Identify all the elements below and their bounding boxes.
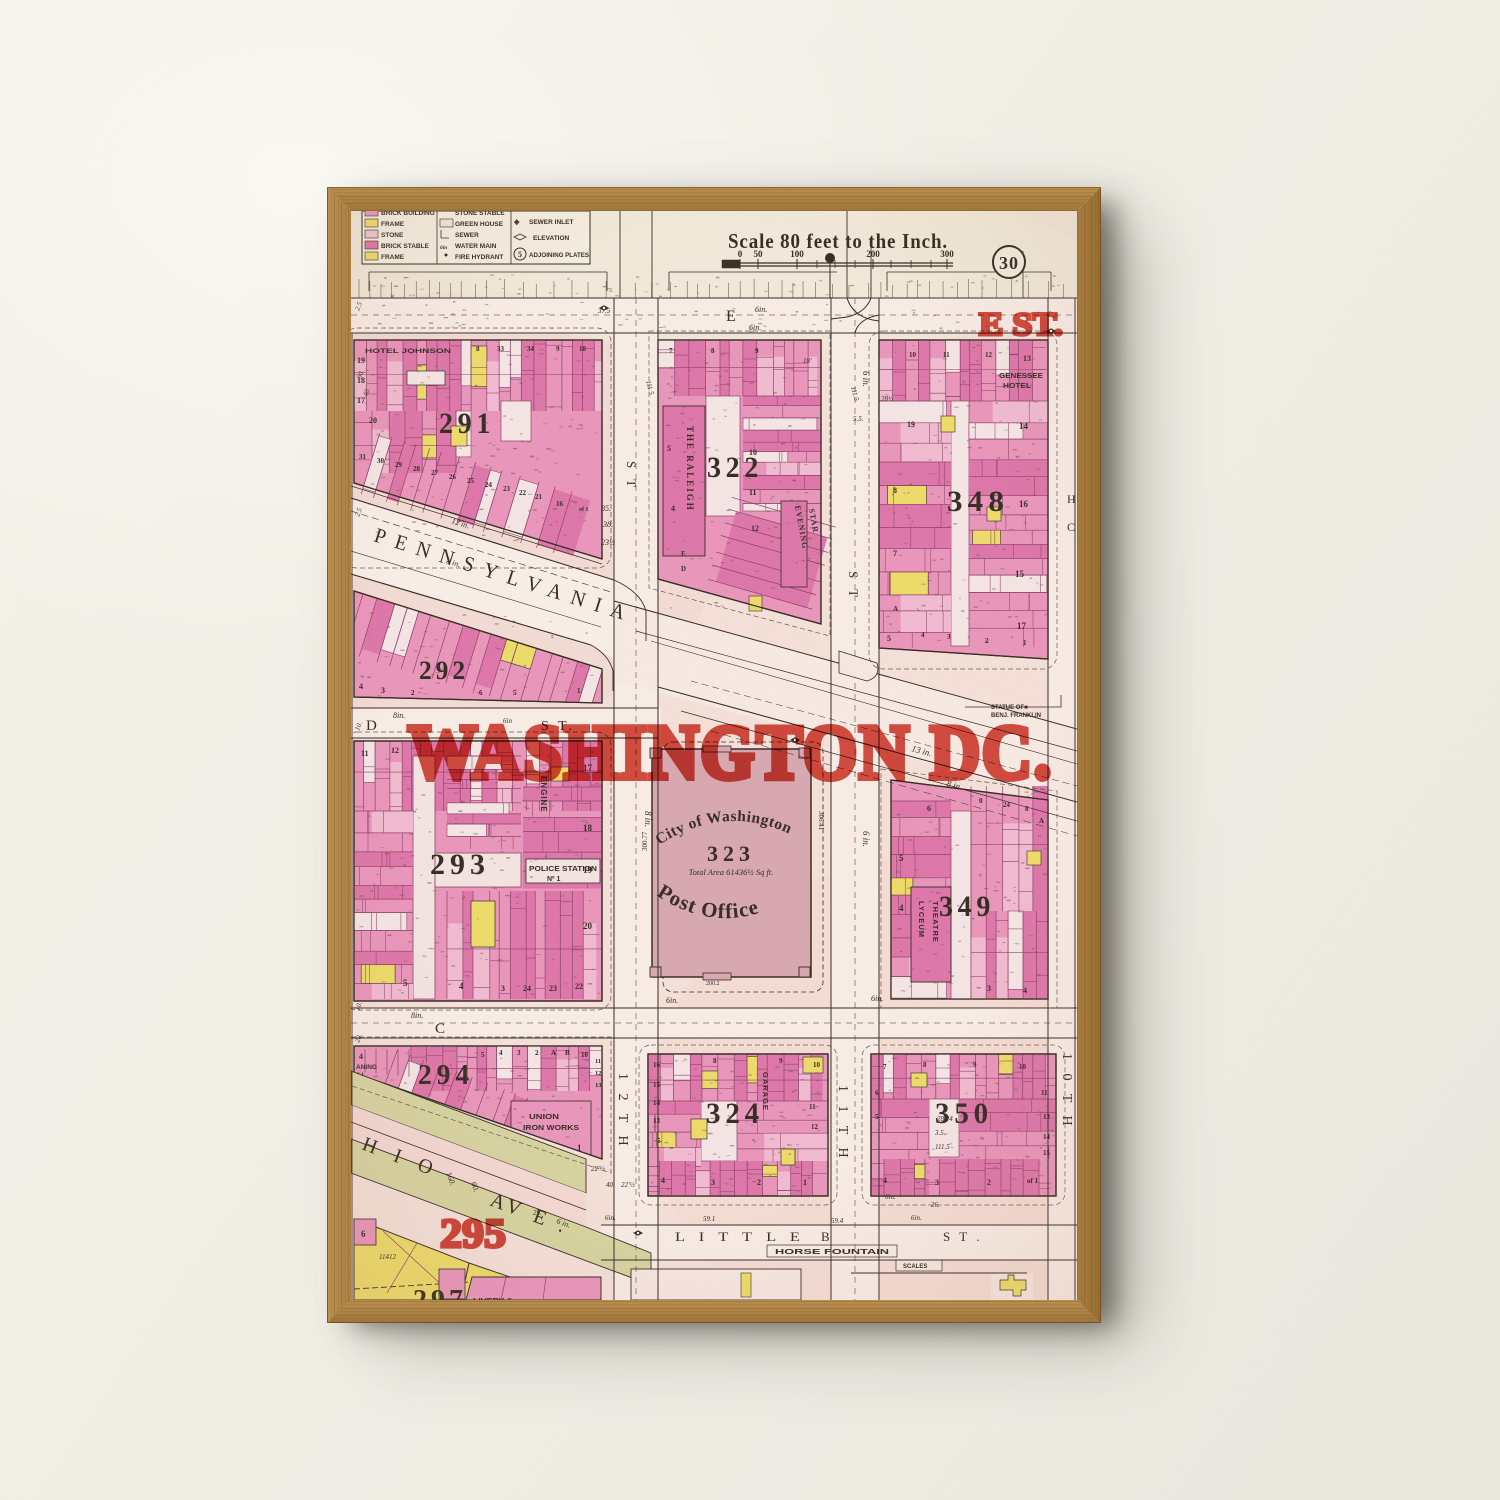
- svg-text:WASHINGTON DC.: WASHINGTON DC.: [408, 709, 1053, 795]
- svg-text:E ST.: E ST.: [979, 307, 1063, 343]
- svg-text:295: 295: [440, 1210, 506, 1256]
